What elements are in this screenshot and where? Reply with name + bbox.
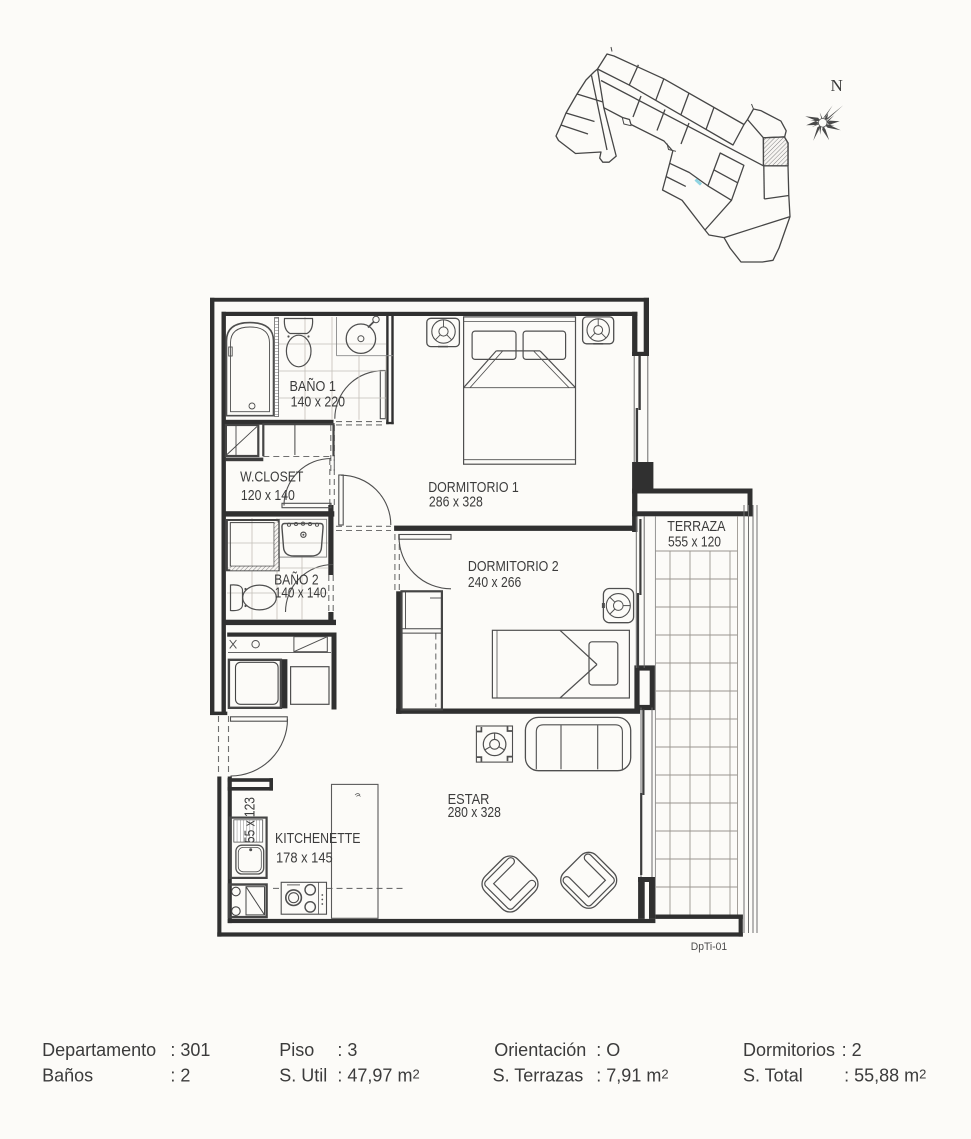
svg-text:555 x 120: 555 x 120 [668,533,721,550]
svg-text:: O: : O [596,1040,620,1060]
svg-text:286 x 328: 286 x 328 [429,494,483,511]
svg-text:N: N [831,76,843,95]
svg-text:: 47,97 m2: : 47,97 m2 [337,1065,419,1085]
svg-text:TERRAZA: TERRAZA [667,518,725,535]
svg-text:: 3: : 3 [337,1040,357,1060]
svg-text:BAÑO 1: BAÑO 1 [290,378,336,395]
svg-text:KITCHENETTE: KITCHENETTE [275,830,361,847]
svg-text:W.CLOSET: W.CLOSET [240,469,303,486]
svg-text:Orientación: Orientación [494,1040,586,1060]
svg-text:280 x 328: 280 x 328 [448,804,501,821]
svg-text:: 2: : 2 [170,1065,190,1085]
svg-text:S. Terrazas: S. Terrazas [493,1065,584,1085]
svg-text:: 55,88 m2: : 55,88 m2 [844,1065,926,1085]
svg-text:DpTi-01: DpTi-01 [691,941,727,953]
svg-text:178 x 145: 178 x 145 [276,850,333,867]
svg-text:140 x 220: 140 x 220 [291,394,345,411]
svg-text:Piso: Piso [279,1040,314,1060]
svg-text:240 x 266: 240 x 266 [468,574,521,591]
svg-text:: 301: : 301 [170,1040,210,1060]
svg-text:DORMITORIO 2: DORMITORIO 2 [468,558,559,575]
svg-text:: 7,91 m2: : 7,91 m2 [596,1065,668,1085]
svg-text:Baños: Baños [42,1065,93,1085]
svg-text:120 x 140: 120 x 140 [241,487,295,504]
svg-text:55 x 123: 55 x 123 [242,797,259,843]
svg-text:S. Util: S. Util [279,1065,327,1085]
svg-text:S. Total: S. Total [743,1065,803,1085]
svg-text:Departamento: Departamento [42,1040,156,1060]
svg-text:: 2: : 2 [842,1040,862,1060]
svg-text:Dormitorios: Dormitorios [743,1040,835,1060]
svg-text:140 x 140: 140 x 140 [275,585,327,602]
